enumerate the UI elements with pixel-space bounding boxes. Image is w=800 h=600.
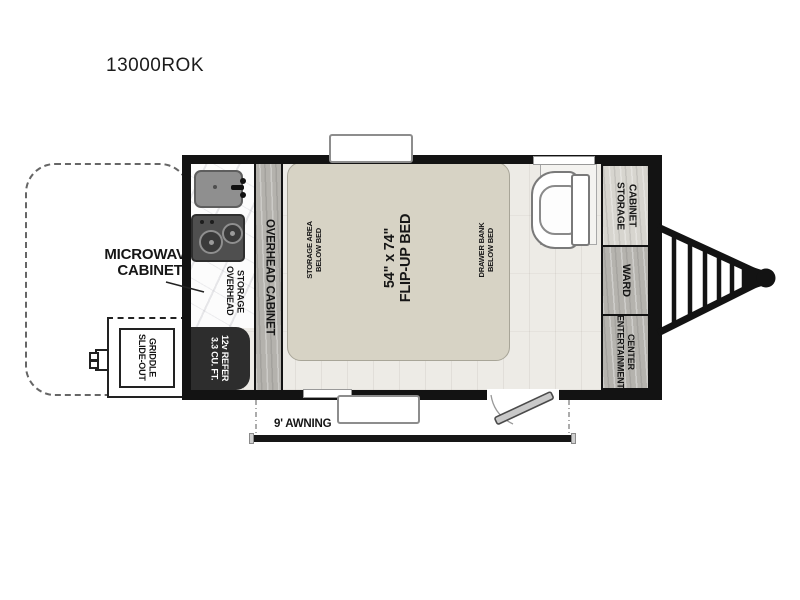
overhead-cabinet: OVERHEAD CABINET bbox=[254, 164, 283, 390]
griddle-plug-prong bbox=[89, 360, 99, 369]
window-front-top bbox=[533, 156, 595, 165]
slide-out-griddle: SLIDE-OUT GRIDDLE bbox=[107, 317, 187, 398]
wardrobe: WARD bbox=[601, 245, 650, 316]
storage-area-label: STORAGE AREA BELOW BED bbox=[305, 221, 323, 279]
sink-faucet-knob bbox=[240, 192, 246, 198]
cooktop-burner bbox=[222, 223, 243, 244]
cooktop-burner bbox=[199, 230, 223, 254]
toilet-tank bbox=[571, 174, 590, 246]
hitch-beam bbox=[658, 282, 760, 333]
refrigerator-label: 3.3 CU. FT. 12v REFER bbox=[209, 335, 230, 381]
window-bottom bbox=[337, 395, 420, 424]
bed-size-label: 54" x 74" FLIP-UP BED bbox=[382, 214, 414, 303]
awning-label: 9' AWNING bbox=[274, 418, 331, 430]
cooktop-knob bbox=[200, 220, 204, 224]
wardrobe-label: WARD bbox=[619, 264, 632, 297]
overhead-cabinet-label: OVERHEAD CABINET bbox=[262, 219, 276, 335]
slide-out-griddle-label: SLIDE-OUT GRIDDLE bbox=[136, 334, 157, 381]
slide-out-griddle-tray: SLIDE-OUT GRIDDLE bbox=[119, 328, 175, 388]
drawer-bank-label: DRAWER BANK BELOW BED bbox=[477, 223, 495, 278]
storage-cabinet: STORAGE CABINET bbox=[601, 164, 650, 247]
awning-end-cap bbox=[249, 433, 254, 444]
refrigerator: 3.3 CU. FT. 12v REFER bbox=[189, 327, 250, 390]
sink-faucet-knob bbox=[240, 178, 246, 184]
overhead-storage-label: OVERHEAD STORAGE bbox=[224, 266, 245, 315]
sink-faucet bbox=[231, 185, 244, 190]
cooktop-knob bbox=[210, 220, 214, 224]
cooktop bbox=[191, 214, 245, 262]
sink-drain bbox=[213, 185, 217, 189]
overhead-storage-label-box: OVERHEAD STORAGE bbox=[219, 258, 251, 324]
entertainment-center-label: ENTERTAINMENT CENTER bbox=[615, 315, 636, 389]
hitch-beam bbox=[658, 227, 760, 274]
microwave-cabinet-label: MICROWAVE CABINET bbox=[95, 247, 205, 279]
awning-bar bbox=[253, 435, 572, 442]
window-top bbox=[329, 134, 413, 163]
awning-end-cap bbox=[571, 433, 576, 444]
hitch-coupler bbox=[746, 265, 768, 291]
hitch-coupler-ball bbox=[757, 269, 776, 288]
entry-door-opening bbox=[487, 389, 559, 401]
model-number: 13000ROK bbox=[106, 55, 204, 77]
entertainment-center: ENTERTAINMENT CENTER bbox=[601, 314, 650, 390]
storage-cabinet-label: STORAGE CABINET bbox=[614, 182, 638, 230]
hitch-frame bbox=[658, 227, 760, 333]
floorplan-canvas: 13000ROK MICROWAVE CABINET SLIDE-OUT GRI… bbox=[0, 0, 800, 600]
